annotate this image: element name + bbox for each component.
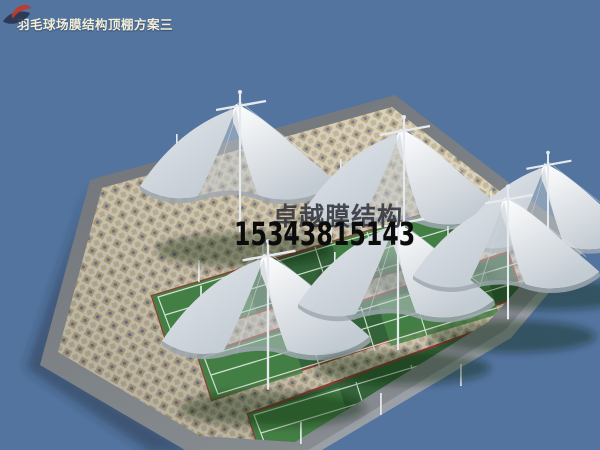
page-title: 羽毛球场膜结构顶棚方案三 xyxy=(17,14,173,33)
scene-3d-render xyxy=(0,0,600,450)
fence-post xyxy=(380,393,382,415)
render-viewport: 羽毛球场膜结构顶棚方案三 卓越膜结构 15343815143 xyxy=(0,0,600,450)
